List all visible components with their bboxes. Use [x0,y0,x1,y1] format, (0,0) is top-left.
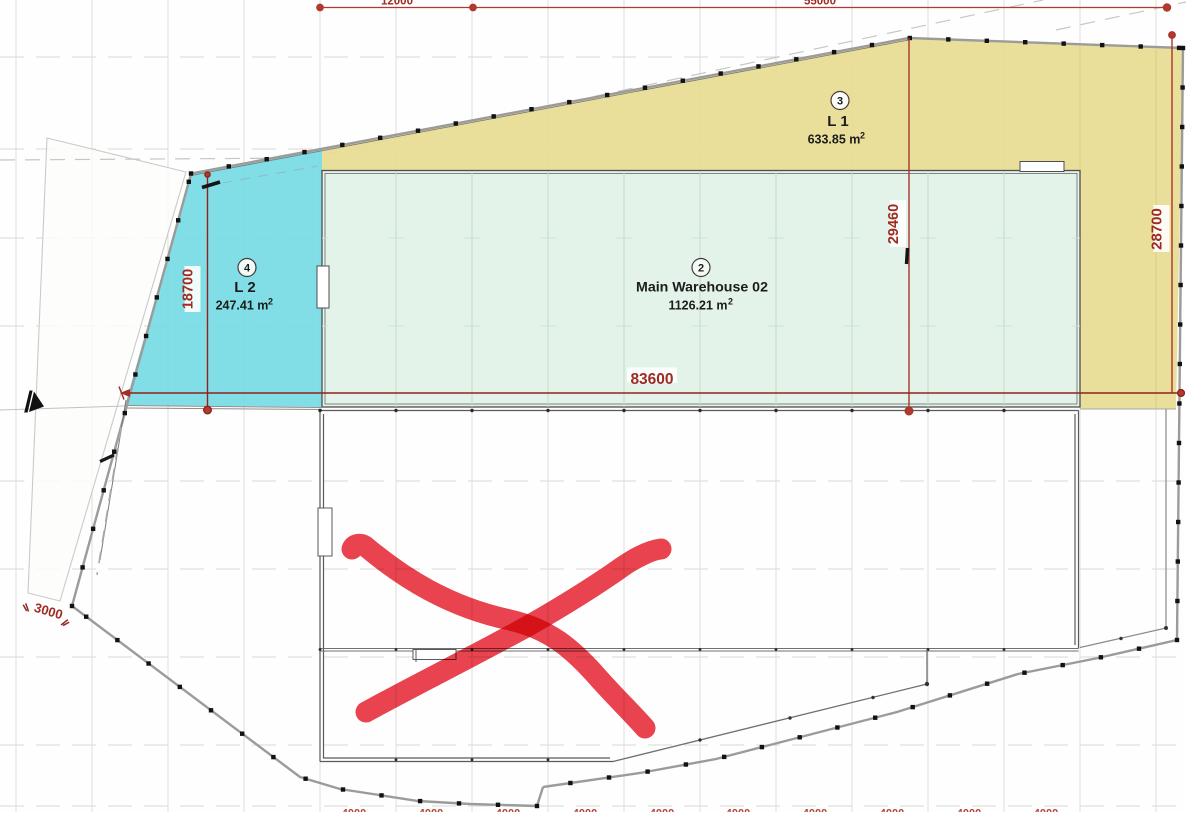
svg-text:28700: 28700 [1149,208,1166,250]
svg-text:2: 2 [728,297,733,307]
svg-text:3: 3 [837,96,843,108]
svg-text:633.85 m: 633.85 m [808,133,861,147]
svg-text:2: 2 [860,131,865,141]
svg-text:4000: 4000 [1034,808,1058,813]
svg-text:4: 4 [244,263,251,275]
svg-text:4000: 4000 [726,808,750,813]
svg-text:55000: 55000 [804,0,836,8]
svg-text:Main Warehouse 02: Main Warehouse 02 [636,280,768,296]
svg-text:4000: 4000 [573,808,597,813]
svg-text:12000: 12000 [381,0,413,8]
svg-text:18700: 18700 [181,269,197,309]
svg-text:L 2: L 2 [234,279,255,296]
svg-text:L 1: L 1 [827,113,848,130]
svg-text:4000: 4000 [650,808,674,813]
svg-text:83600: 83600 [630,371,673,388]
svg-text:4000: 4000 [803,808,827,813]
svg-text:4000: 4000 [419,808,443,813]
svg-text:2: 2 [268,297,273,307]
svg-text:2: 2 [698,263,704,275]
svg-text:1126.21 m: 1126.21 m [668,299,727,313]
svg-text:29460: 29460 [886,204,902,244]
svg-text:4000: 4000 [496,808,520,813]
svg-text:4000: 4000 [342,808,366,813]
svg-text:4000: 4000 [880,808,904,813]
svg-text:247.41 m: 247.41 m [216,299,269,313]
svg-text:4000: 4000 [957,808,981,813]
